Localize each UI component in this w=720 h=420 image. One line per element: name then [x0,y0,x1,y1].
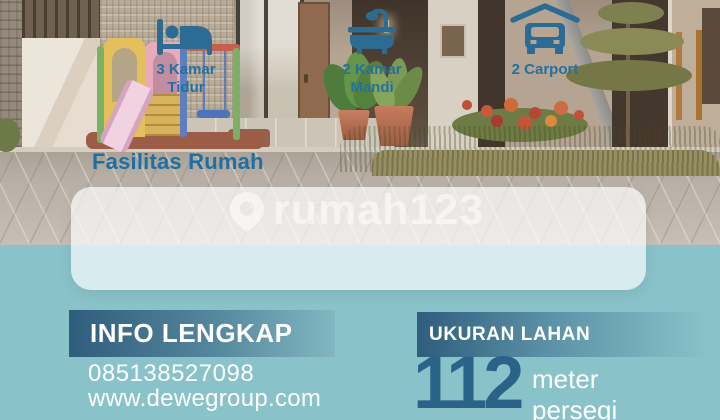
land-size-value: 112 [413,352,520,415]
carport-icon [480,0,610,55]
right-window [702,8,720,104]
bathtub-icon [307,0,437,55]
section-title: Fasilitas Rumah [92,149,264,175]
facility-label: 2 Carport [480,61,610,79]
pergola-post [696,30,702,120]
bed-icon [121,0,251,55]
flyer: Fasilitas Rumah rumah123 3 Kamar Tidur [0,0,720,420]
facility-bedroom: 3 Kamar Tidur [121,0,251,98]
land-size-unit: meter persegi [532,364,617,420]
picture-frame [440,24,466,58]
facilities-card [71,187,646,290]
phone-number: 085138527098 [88,360,254,388]
facility-bathroom: 2 Kamar Mandi [307,0,437,98]
grass-hedge-front [372,150,720,176]
facility-carport: 2 Carport [480,0,610,79]
playground-post [97,46,104,143]
info-heading: INFO LENGKAP [69,318,292,349]
facility-label: 3 Kamar Tidur [121,61,251,98]
website-url: www.dewegroup.com [88,385,321,413]
info-heading-bar: INFO LENGKAP [69,310,335,357]
swing-seat [197,110,230,118]
red-flowers [462,100,472,110]
facility-label: 2 Kamar Mandi [307,61,437,98]
